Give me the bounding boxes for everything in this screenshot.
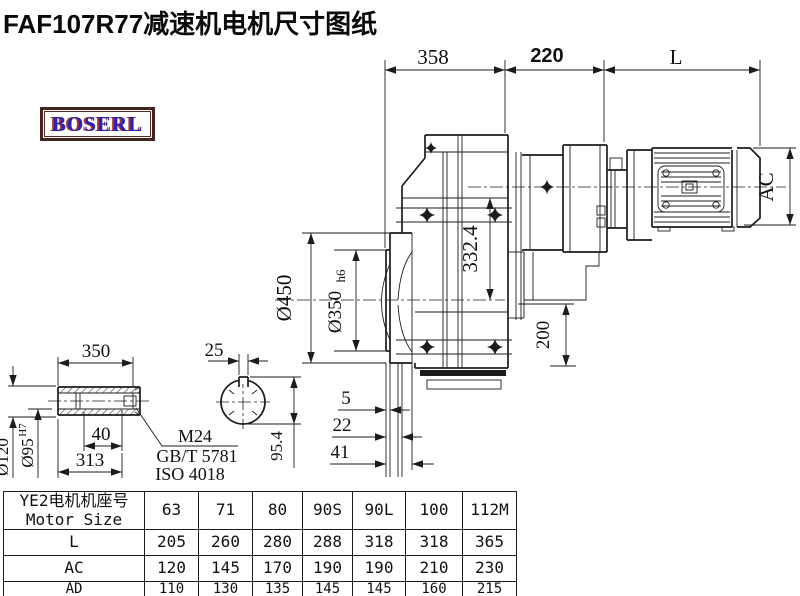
shaft-detail-side-view: 350 Ø120 Ø95 H7 40 313 M24 GB/T 5781 ISO… [0, 341, 238, 484]
output-flange [382, 233, 413, 363]
table-header-size: 100 [406, 492, 463, 530]
standard-iso-label: ISO 4018 [155, 464, 225, 484]
dim-332: 332.4 [458, 198, 490, 300]
table-cell: 210 [406, 556, 463, 582]
dim-95-tolerance: H7 [17, 423, 29, 437]
page-title: FAF107R77减速机电机尺寸图纸 [3, 4, 377, 41]
table-cell: 145 [353, 582, 406, 596]
dim-25-label: 25 [205, 340, 224, 361]
motor-adapter [508, 145, 627, 320]
dim-220-label: 220 [530, 45, 563, 67]
dim-120-label: Ø120 [0, 438, 12, 476]
dim-95-label: Ø95 [18, 438, 37, 467]
table-cell: 170 [253, 556, 303, 582]
dim-flange-diameters: Ø450 Ø350 h6 [272, 233, 390, 363]
table-cell: 205 [145, 530, 199, 556]
dim-5-22-41: 5 22 41 [330, 363, 434, 477]
technical-drawing: 358 220 L AC 332.4 200 [0, 0, 800, 490]
dim-954-label: 95.4 [267, 431, 286, 461]
table-cell: 135 [253, 582, 303, 596]
table-cell: 318 [353, 530, 406, 556]
dim-5-label: 5 [341, 388, 351, 409]
table-cell: 365 [463, 530, 517, 556]
table-cell: 230 [463, 556, 517, 582]
dim-ac: AC [744, 148, 796, 225]
dim-41-label: 41 [331, 442, 350, 463]
table-header-cn: YE2电机机座号 [4, 492, 144, 510]
table-header-en: Motor Size [4, 511, 144, 529]
dim-200-label: 200 [533, 321, 554, 350]
boserl-logo-text: BOSERL [52, 112, 143, 137]
table-cell: 260 [199, 530, 253, 556]
dim-40-label: 40 [92, 424, 111, 445]
dim-350-tolerance: h6 [333, 269, 348, 283]
table-cell: 120 [145, 556, 199, 582]
dim-ac-label: AC [754, 172, 778, 201]
table-header-size: 63 [145, 492, 199, 530]
table-cell: 215 [463, 582, 517, 596]
table-cell: 280 [253, 530, 303, 556]
dim-450-label: Ø450 [272, 275, 296, 322]
table-cell: 130 [199, 582, 253, 596]
table-cell: 145 [199, 556, 253, 582]
table-cell: 110 [145, 582, 199, 596]
table-cell: 160 [406, 582, 463, 596]
standard-gb-label: GB/T 5781 [156, 446, 237, 466]
dim-350-label: Ø350 [325, 291, 346, 333]
table-cell: 190 [353, 556, 406, 582]
table-row: AD 110 130 135 145 145 160 215 [4, 582, 517, 596]
dim-22-label: 22 [333, 415, 352, 436]
table-header-motor-size: YE2电机机座号 Motor Size [4, 492, 145, 530]
table-header-size: 71 [199, 492, 253, 530]
table-header-size: 112M [463, 492, 517, 530]
table-header-size: 90S [303, 492, 353, 530]
dim-358-label: 358 [417, 45, 449, 69]
boserl-logo: BOSERL [40, 107, 155, 141]
motor-size-table: YE2电机机座号 Motor Size 63 71 80 90S 90L 100… [3, 491, 517, 596]
table-cell: 318 [406, 530, 463, 556]
table-cell: 190 [303, 556, 353, 582]
table-row: AC 120 145 170 190 190 210 230 [4, 556, 517, 582]
table-header-size: 80 [253, 492, 303, 530]
motor [627, 148, 760, 240]
dim-313-label: 313 [76, 450, 105, 471]
dim-200: 200 [518, 304, 576, 366]
thread-spec-label: M24 [178, 426, 212, 446]
table-cell: 145 [303, 582, 353, 596]
table-header-size: 90L [353, 492, 406, 530]
center-lines [48, 187, 786, 429]
table-row-label: AD [4, 582, 145, 596]
dim-top-row: 358 220 L [385, 45, 760, 248]
drawing-page: 358 220 L AC 332.4 200 [0, 0, 800, 596]
table-row: L 205 260 280 288 318 318 365 [4, 530, 517, 556]
boserl-logo-frame: BOSERL [44, 111, 151, 137]
table-row-label: L [4, 530, 145, 556]
table-cell: 288 [303, 530, 353, 556]
dim-350b-label: 350 [82, 341, 111, 362]
table-row-label: AC [4, 556, 145, 582]
dim-L-label: L [670, 45, 683, 69]
